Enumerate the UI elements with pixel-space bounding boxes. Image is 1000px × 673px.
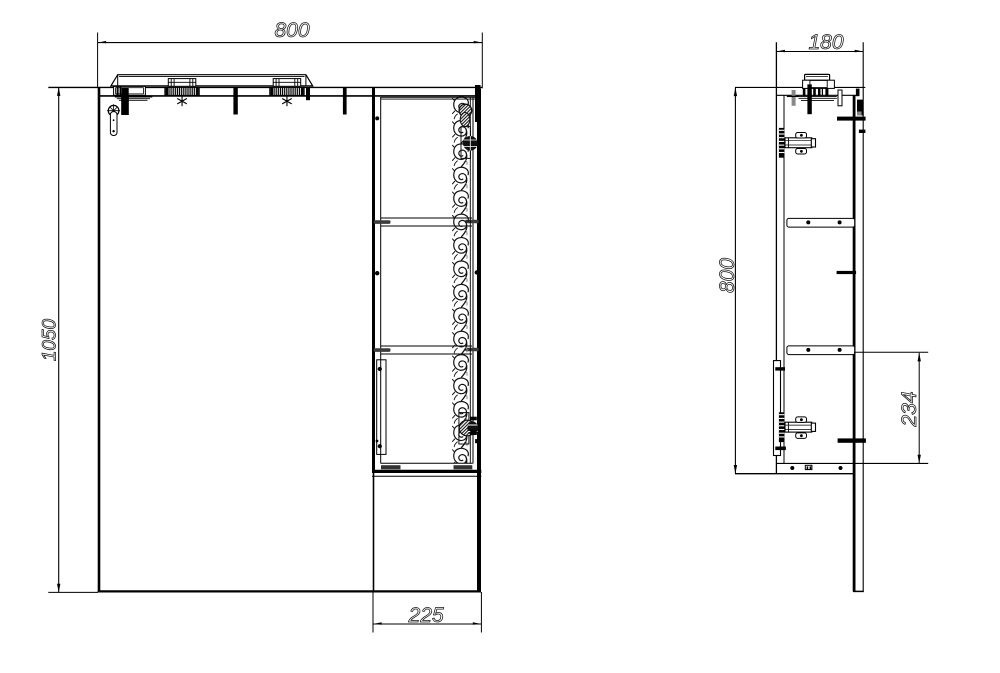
svg-text:800: 800 <box>716 258 739 293</box>
svg-text:800: 800 <box>274 19 309 42</box>
svg-text:234: 234 <box>898 391 921 427</box>
svg-text:1050: 1050 <box>40 318 61 361</box>
svg-text:180: 180 <box>808 31 843 54</box>
svg-text:225: 225 <box>408 604 444 627</box>
